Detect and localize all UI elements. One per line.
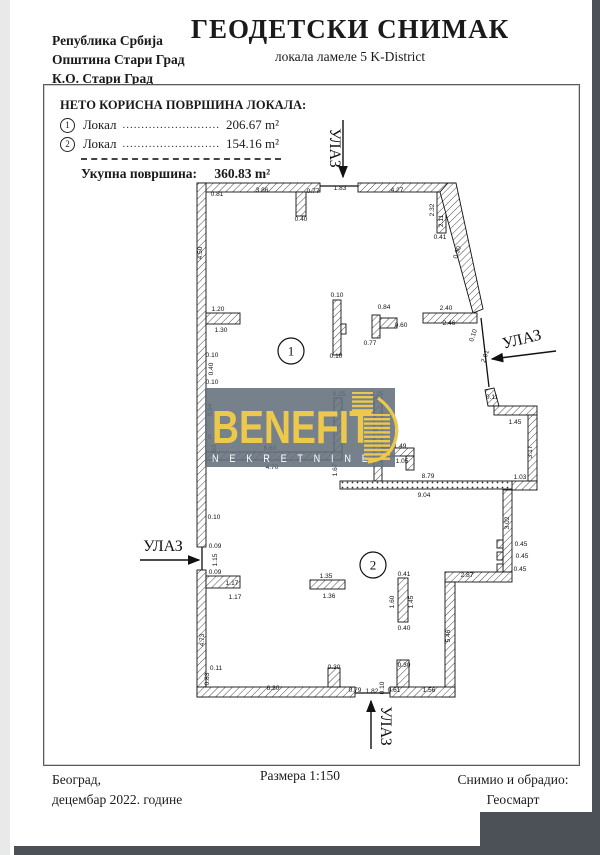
dimension-label: 8.79	[422, 473, 435, 480]
dimension-label: 0.61	[388, 687, 401, 694]
dimension-label: 1.15	[212, 553, 219, 566]
area-number: 2	[370, 558, 377, 573]
dimension-label: 1.45	[408, 595, 415, 608]
dimension-label: 4.27	[391, 187, 404, 194]
dimension-label: 1.36	[323, 593, 336, 600]
dimension-label: 0.83	[204, 672, 211, 685]
dimension-label: 0.45	[516, 553, 529, 560]
dimension-label: 0.10	[208, 514, 221, 521]
dimension-label: 1.30	[215, 327, 228, 334]
area-number: 1	[288, 344, 295, 359]
entrance-label: УЛАЗ	[326, 128, 343, 168]
dimension-label: 0.45	[514, 566, 527, 573]
dimension-label: 1.83	[334, 185, 347, 192]
dimension-label: 0.11	[210, 665, 223, 672]
dimension-label: 0.10	[206, 352, 219, 359]
entrance-label: УЛАЗ	[377, 706, 394, 746]
dimension-label: 0.40	[398, 625, 411, 632]
plan-dotted-wall	[340, 481, 512, 489]
dimension-label: 2.40	[440, 305, 453, 312]
dimension-label: 5.46	[445, 629, 452, 642]
dimension-label: 0.40	[208, 362, 215, 375]
footer-place-line2: децембар 2022. године	[52, 790, 182, 810]
dimension-label: 1.05	[396, 458, 409, 465]
dimension-label: 3.86	[256, 187, 269, 194]
dimension-label: 0.10	[206, 379, 219, 386]
dimension-label: 0.10	[468, 328, 479, 343]
footer-surveyor-line1: Снимио и обрадио:	[443, 770, 583, 790]
benefit-logo: BENEFIT N E K R E T N I N E	[205, 388, 397, 467]
benefit-logo-wordmark: BENEFIT	[212, 401, 372, 453]
dimension-label: 1.17	[229, 594, 242, 601]
dimension-label: 1.35	[320, 573, 333, 580]
entrance-label: УЛАЗ	[143, 538, 183, 555]
dimension-label: 1.17	[226, 580, 239, 587]
dimension-label: 0.30	[328, 664, 341, 671]
dimension-label: 0.10	[331, 292, 344, 299]
dimension-label: 1.60	[389, 595, 396, 608]
dimension-label: 0.77	[307, 188, 320, 195]
dimension-label: 0.81	[211, 191, 224, 198]
dimension-label: 0.30	[398, 662, 411, 669]
dimension-label: 2.32	[429, 203, 436, 216]
dimension-label: 2.87	[461, 572, 474, 579]
benefit-logo-subtitle: N E K R E T N I N E	[212, 453, 372, 465]
dimension-label: 2.46	[443, 320, 456, 327]
dimension-label: 2.01	[480, 349, 491, 364]
dimension-label: 1.56	[423, 687, 436, 694]
dimension-label: 0.84	[378, 304, 391, 311]
dimension-label: 0.10	[330, 353, 343, 360]
footer-surveyor-line2: Геосмарт	[443, 790, 583, 810]
dimension-label: 0.41	[398, 571, 411, 578]
dimension-label: 1.45	[509, 419, 522, 426]
dimension-label: 0.10	[379, 681, 386, 694]
dimension-label: 0.77	[364, 340, 377, 347]
dimension-label: 9.04	[418, 492, 431, 499]
dimension-label: 4.73	[199, 633, 206, 646]
dimension-label: 0.09	[209, 569, 222, 576]
dimension-label: 1.03	[514, 474, 527, 481]
dimension-label: 3.02	[504, 516, 511, 529]
floor-plan: 0.813.860.771.834.270.402.322.110.410.30…	[0, 0, 600, 855]
dimension-label: 0.09	[209, 543, 222, 550]
dimension-label: 0.60	[395, 322, 408, 329]
scan-edge-bottom-right	[480, 812, 600, 855]
dimension-label: 0.45	[515, 541, 528, 548]
dimension-label: 6.30	[267, 685, 280, 692]
dimension-label: 1.82	[366, 688, 379, 695]
dimension-label: 3.17	[527, 445, 534, 458]
footer-scale: Размера 1:150	[150, 768, 450, 784]
dimension-label: 0.11	[486, 394, 499, 401]
dimension-label: 0.40	[295, 216, 308, 223]
entrance-arrow	[492, 351, 556, 359]
dimension-label: 1.20	[212, 306, 225, 313]
dimension-label: 4.50	[197, 246, 204, 259]
scan-edge-right	[592, 0, 600, 855]
dimension-label: 0.79	[349, 687, 362, 694]
footer-surveyor: Снимио и обрадио: Геосмарт	[443, 770, 583, 809]
dimension-label: 2.11	[438, 215, 445, 228]
dimension-label: 0.41	[434, 234, 447, 241]
entrance-label: УЛАЗ	[501, 327, 543, 353]
